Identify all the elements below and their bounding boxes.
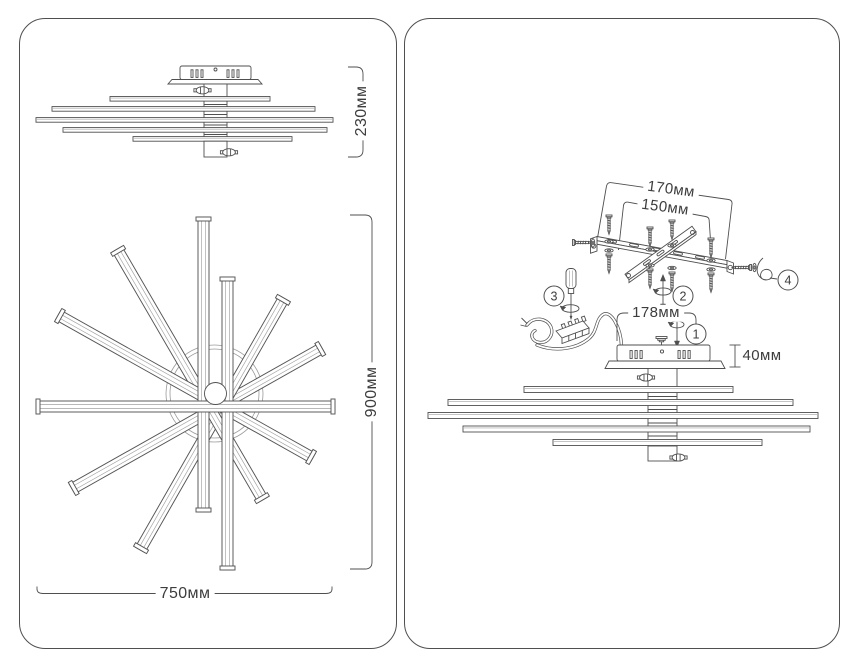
step-callout-1: 1 (686, 324, 707, 345)
dim-label-front-height: 900мм (363, 363, 381, 422)
product-spec-sheet: 230мм 900мм 750мм 170мм 150мм 178мм 40мм… (0, 0, 860, 668)
dim-label-side-height: 230мм (353, 82, 371, 141)
step-callout-4: 4 (778, 270, 799, 291)
dim-label-front-width: 750мм (156, 585, 215, 603)
panel-installation-diagram (404, 18, 840, 649)
panel-dimension-drawings (19, 18, 397, 649)
step-callout-3: 3 (544, 286, 565, 307)
step-callout-2: 2 (673, 286, 694, 307)
dim-label-canopy-width: 178мм (628, 305, 684, 322)
dim-label-canopy-height: 40мм (739, 348, 786, 365)
